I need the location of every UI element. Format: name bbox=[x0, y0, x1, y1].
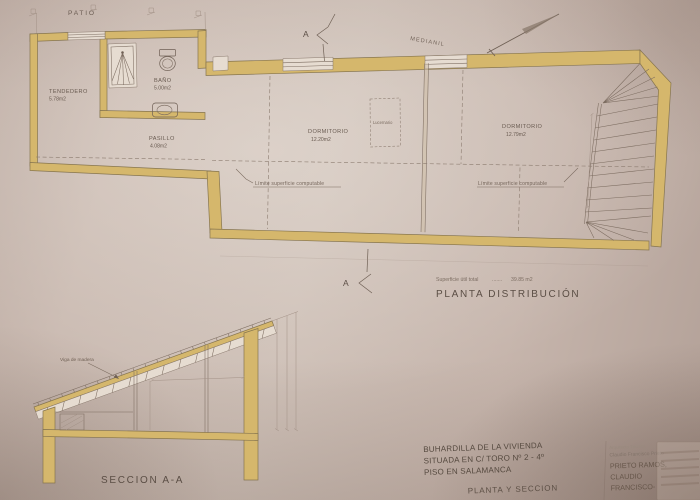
room-label-pasillo: PASILLO bbox=[149, 136, 175, 142]
room-label-dormitorio-2: DORMITORIO bbox=[502, 124, 543, 130]
wall-left-block-south bbox=[30, 163, 211, 180]
limit-line-vertical-2 bbox=[461, 70, 463, 164]
room-area-pasillo: 4.08m2 bbox=[150, 144, 167, 150]
total-area-dots: ....... bbox=[492, 277, 502, 283]
limit-line-vertical-3 bbox=[519, 168, 521, 232]
lucernario-label: Lucernario bbox=[373, 120, 393, 125]
project-title-line3: PISO EN SALAMANCA bbox=[424, 465, 512, 477]
scanned-drawing-photo: PATIO MEDIANIL A A TENDEDERO 5.78m2 BAÑO… bbox=[0, 0, 700, 500]
title-block: BUHARDILLA DE LA VIVIENDA SITUADA EN C/ … bbox=[423, 440, 700, 500]
section-marker-a-bottom: A bbox=[343, 278, 349, 288]
floor-plan: PATIO MEDIANIL A A TENDEDERO 5.78m2 BAÑO… bbox=[29, 5, 671, 300]
medianil-label: MEDIANIL bbox=[410, 36, 446, 48]
limit-line-main bbox=[212, 161, 649, 168]
drawing-title: PLANTA Y SECCION bbox=[468, 483, 559, 495]
room-area-dormitorio-1: 12.20m2 bbox=[311, 137, 331, 143]
north-arrow-icon bbox=[487, 14, 559, 56]
wall-left-block-east bbox=[198, 31, 206, 69]
dimension-ticks bbox=[29, 5, 202, 18]
wall-bottom-main bbox=[210, 229, 649, 250]
eave-detail bbox=[55, 412, 133, 430]
limit-label-left: Límite superficie computable bbox=[255, 181, 324, 187]
rafter-band bbox=[36, 326, 277, 420]
wall-left bbox=[30, 34, 38, 166]
room-area-dormitorio-2: 12.79m2 bbox=[506, 132, 526, 138]
window-left-block bbox=[68, 32, 105, 41]
room-area-bano: 5.00m2 bbox=[154, 86, 171, 92]
wall-right-stairs bbox=[640, 50, 671, 247]
section-title: SECCION A-A bbox=[101, 475, 184, 486]
duct-box bbox=[213, 56, 228, 71]
partition-dormitorios bbox=[421, 63, 429, 232]
room-area-tendedero: 5.78m2 bbox=[49, 97, 66, 103]
section-floor-slab bbox=[43, 430, 258, 441]
room-label-bano: BAÑO bbox=[154, 77, 172, 84]
room-label-dormitorio-1: DORMITORIO bbox=[308, 129, 349, 135]
shower-icon bbox=[108, 43, 137, 88]
section-column-left bbox=[43, 407, 55, 483]
section-dimension-lines bbox=[150, 312, 298, 432]
architect-name-line3: FRANCISCO- bbox=[610, 482, 656, 493]
section-cut-marker-top bbox=[317, 14, 335, 61]
roof-tile-ticks bbox=[38, 321, 265, 406]
roof-band bbox=[34, 321, 274, 412]
window-main-2 bbox=[425, 55, 467, 69]
toilet-icon bbox=[160, 50, 176, 71]
wall-top-main bbox=[206, 50, 640, 76]
beam-label: Viga de madera bbox=[60, 357, 94, 363]
beam-callout: Viga de madera bbox=[60, 357, 119, 379]
titleblock-divider bbox=[604, 441, 606, 500]
signature-stamp bbox=[657, 442, 700, 500]
section-drawing: Viga de madera SECCION A-A bbox=[33, 312, 298, 487]
project-title-line2: SITUADA EN C/ TORO Nº 2 - 4º bbox=[424, 452, 545, 465]
stairs bbox=[585, 64, 659, 241]
wall-bano-divider bbox=[100, 39, 107, 118]
section-marker-a-top: A bbox=[303, 29, 309, 39]
architect-small-line1: Arquitecto Técnico bbox=[609, 444, 646, 450]
plan-title: PLANTA DISTRIBUCIÓN bbox=[436, 287, 580, 300]
stair-treads bbox=[585, 64, 659, 241]
bottom-dimension-line bbox=[220, 256, 648, 266]
wall-step-west bbox=[207, 171, 222, 233]
section-cut-marker-bottom bbox=[359, 249, 372, 293]
window-main-1 bbox=[283, 57, 333, 71]
limit-label-right: Límite superficie computable bbox=[478, 181, 547, 187]
total-area-value: 39.85 m2 bbox=[511, 277, 533, 283]
total-area-label: Superficie útil total bbox=[436, 277, 478, 283]
patio-label: PATIO bbox=[68, 10, 96, 17]
limit-line-left bbox=[36, 157, 206, 160]
architectural-drawing: PATIO MEDIANIL A A TENDEDERO 5.78m2 BAÑO… bbox=[0, 0, 700, 500]
architect-name-line2: CLAUDIO bbox=[610, 471, 643, 481]
room-label-tendedero: TENDEDERO bbox=[49, 89, 88, 95]
wall-top-left-b bbox=[105, 30, 206, 40]
section-column-right bbox=[244, 329, 258, 481]
architect-small-line2: Claudio Francisco Prieto bbox=[609, 451, 664, 459]
limit-line-vertical-1 bbox=[268, 76, 271, 229]
